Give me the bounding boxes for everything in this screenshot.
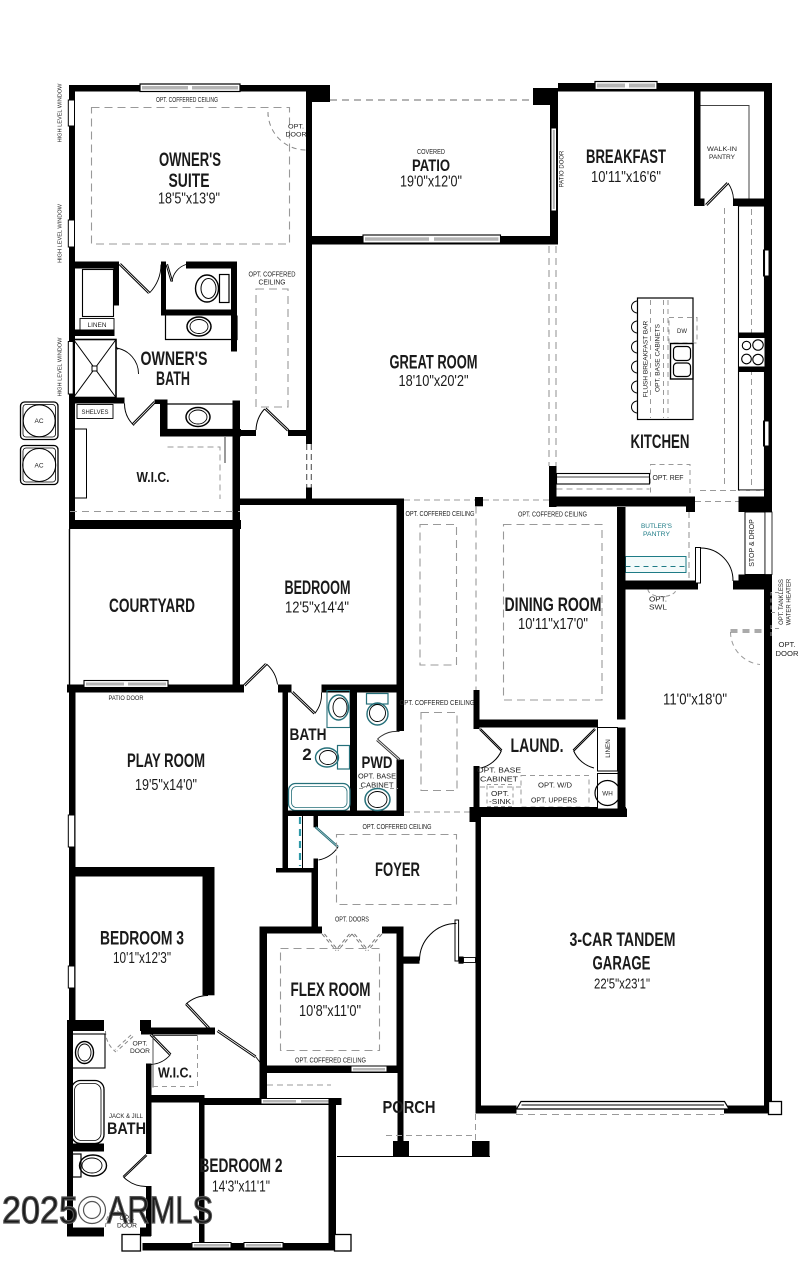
svg-text:PATIO DOOR: PATIO DOOR (109, 696, 145, 702)
svg-text:CEILING: CEILING (259, 280, 286, 287)
svg-text:OPT. BASE: OPT. BASE (477, 768, 521, 775)
svg-text:DOOR: DOOR (776, 651, 799, 658)
svg-text:10'11"x16'6": 10'11"x16'6" (591, 169, 661, 186)
svg-text:DINING ROOM: DINING ROOM (505, 594, 602, 616)
svg-text:OPT. COFFERED CEILING: OPT. COFFERED CEILING (295, 1058, 366, 1065)
svg-text:COURTYARD: COURTYARD (109, 596, 195, 617)
svg-text:14'3"x11'1": 14'3"x11'1" (212, 1179, 270, 1196)
svg-text:W.I.C.: W.I.C. (137, 470, 170, 486)
svg-text:LAUND.: LAUND. (511, 735, 564, 757)
svg-text:BEDROOM: BEDROOM (285, 578, 351, 599)
svg-text:OPT. DOORS: OPT. DOORS (335, 917, 369, 924)
svg-text:AC: AC (34, 418, 43, 425)
svg-text:PWD: PWD (362, 753, 393, 772)
svg-text:PATIO: PATIO (412, 156, 450, 175)
svg-text:-SINK: -SINK (489, 799, 511, 806)
svg-text:BUTLER'S: BUTLER'S (641, 523, 673, 530)
svg-text:GREAT ROOM: GREAT ROOM (390, 352, 478, 374)
svg-text:OPT. COFFERED CEILING: OPT. COFFERED CEILING (156, 97, 218, 104)
svg-text:PORCH: PORCH (383, 1097, 436, 1117)
svg-text:OPT.: OPT. (649, 597, 667, 604)
svg-text:JACK & JILL: JACK & JILL (109, 1113, 143, 1120)
svg-text:FLEX ROOM: FLEX ROOM (291, 979, 371, 1001)
svg-text:PANTRY: PANTRY (709, 154, 736, 161)
svg-text:OWNER'S: OWNER'S (159, 150, 221, 171)
svg-text:3-CAR TANDEM: 3-CAR TANDEM (570, 930, 676, 951)
svg-text:BEDROOM 2: BEDROOM 2 (200, 1156, 283, 1177)
svg-text:22'5"x23'1": 22'5"x23'1" (594, 976, 650, 993)
svg-text:PANTRY: PANTRY (643, 531, 671, 538)
svg-text:OPT. COFFERED CEILING: OPT. COFFERED CEILING (518, 512, 587, 519)
svg-text:CABINET: CABINET (480, 777, 519, 784)
svg-text:18'5"x13'9": 18'5"x13'9" (158, 191, 220, 208)
svg-text:LINEN: LINEN (605, 739, 612, 758)
svg-text:BREAKFAST: BREAKFAST (586, 147, 666, 168)
svg-text:HIGH LEVEL WINDOW: HIGH LEVEL WINDOW (58, 83, 64, 143)
svg-text:OPT. UPPERS: OPT. UPPERS (531, 798, 577, 805)
svg-text:OPT.: OPT. (288, 124, 304, 131)
svg-text:10'8"x11'0": 10'8"x11'0" (299, 1003, 361, 1020)
svg-text:W.I.C.: W.I.C. (158, 1066, 192, 1082)
svg-text:OPT. TANKLESS: OPT. TANKLESS (779, 579, 785, 625)
svg-text:SHELVES: SHELVES (82, 409, 110, 416)
svg-text:18'10"x20'2": 18'10"x20'2" (399, 373, 469, 390)
svg-text:OPT. COFFERED CEILING: OPT. COFFERED CEILING (363, 824, 432, 831)
svg-text:DW: DW (677, 329, 687, 335)
svg-text:DOOR: DOOR (130, 1048, 150, 1055)
svg-text:COVERED: COVERED (417, 149, 445, 156)
svg-text:10'11"x17'0": 10'11"x17'0" (518, 616, 588, 633)
svg-text:DOOR: DOOR (286, 132, 307, 139)
svg-text:AC: AC (34, 463, 43, 470)
svg-text:WATER HEATER: WATER HEATER (787, 578, 793, 625)
svg-text:OPT.: OPT. (779, 642, 796, 649)
svg-text:2025: 2025 (2, 1190, 78, 1232)
svg-text:LINEN: LINEN (88, 322, 107, 329)
svg-text:OPT. REF: OPT. REF (653, 475, 684, 482)
svg-text:FLUSH BREAKFAST BAR: FLUSH BREAKFAST BAR (643, 320, 650, 397)
svg-text:STOP & DROP: STOP & DROP (749, 519, 756, 567)
svg-text:10'1"x12'3": 10'1"x12'3" (113, 950, 171, 967)
svg-text:OPT. COFFERED CEILING: OPT. COFFERED CEILING (400, 700, 475, 707)
svg-text:ARMLS: ARMLS (107, 1190, 213, 1232)
svg-text:OPT.: OPT. (491, 791, 509, 798)
svg-text:PATIO DOOR: PATIO DOOR (560, 150, 566, 187)
svg-text:BATH: BATH (156, 369, 190, 390)
svg-text:19'5"x14'0": 19'5"x14'0" (135, 777, 197, 794)
svg-text:HIGH LEVEL WINDOW: HIGH LEVEL WINDOW (58, 203, 64, 263)
svg-text:19'0"x12'0": 19'0"x12'0" (400, 174, 462, 191)
svg-text:2: 2 (302, 745, 311, 764)
svg-text:OPT. COFFERED CEILING: OPT. COFFERED CEILING (406, 511, 475, 518)
svg-text:OPT. BASE CABINETS: OPT. BASE CABINETS (655, 323, 662, 392)
svg-text:HIGH LEVEL WINDOW: HIGH LEVEL WINDOW (58, 337, 64, 397)
svg-text:PLAY ROOM: PLAY ROOM (127, 751, 205, 772)
svg-text:OPT. BASE: OPT. BASE (358, 774, 396, 781)
svg-text:WH: WH (602, 791, 613, 798)
svg-text:BEDROOM 3: BEDROOM 3 (100, 929, 184, 950)
svg-text:12'5"x14'4": 12'5"x14'4" (285, 600, 349, 617)
svg-text:SUITE: SUITE (169, 171, 210, 192)
svg-text:BATH: BATH (107, 1120, 146, 1138)
svg-text:OPT.: OPT. (133, 1041, 148, 1048)
svg-text:FOYER: FOYER (375, 859, 420, 881)
svg-text:11'0"x18'0": 11'0"x18'0" (663, 692, 727, 709)
svg-text:GARAGE: GARAGE (593, 954, 651, 975)
svg-text:OPT. COFFERED: OPT. COFFERED (249, 272, 296, 279)
svg-text:OPT. W/D: OPT. W/D (538, 783, 572, 790)
svg-text:KITCHEN: KITCHEN (631, 432, 690, 453)
svg-text:SWL: SWL (649, 605, 667, 612)
svg-text:OWNER'S: OWNER'S (141, 349, 208, 370)
svg-text:BATH: BATH (290, 725, 327, 744)
svg-text:WALK-IN: WALK-IN (707, 146, 738, 153)
